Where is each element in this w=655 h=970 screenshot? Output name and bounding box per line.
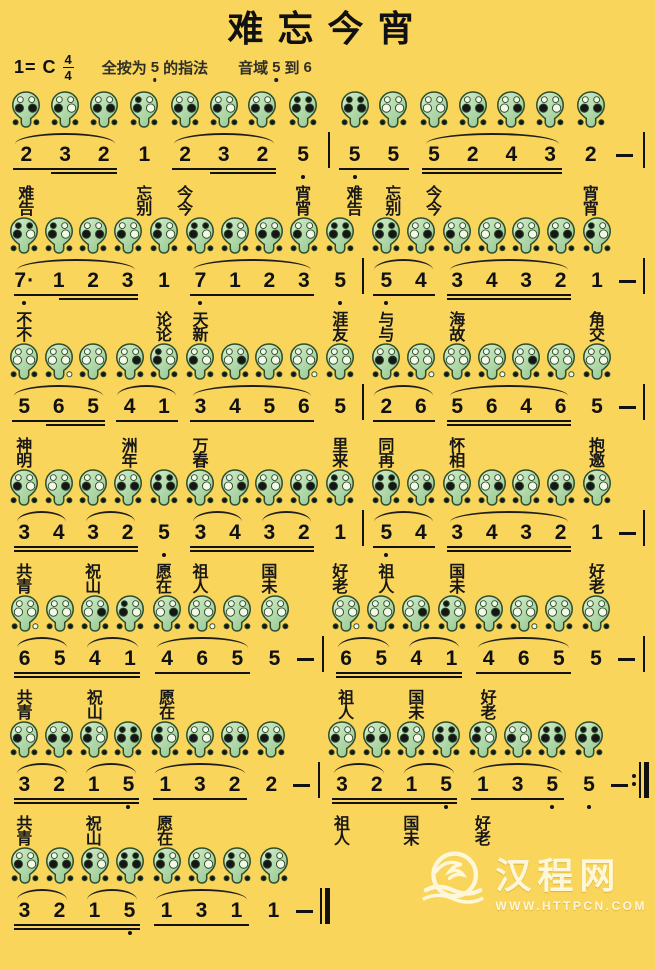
note-number: 1	[161, 899, 173, 923]
ocarina-fingering-icon	[252, 342, 286, 382]
note-number: 5	[591, 395, 603, 419]
lyric-verse1: 祖	[192, 554, 208, 573]
barline-stroke	[643, 258, 645, 294]
beam-line	[447, 294, 571, 296]
dash-rest	[293, 592, 318, 671]
lyric-verse2: 别	[385, 195, 401, 214]
lyric-verse2: 在	[159, 699, 175, 718]
ocarina-fingering-icon	[150, 594, 184, 634]
dash-stroke	[616, 154, 633, 157]
dash-stroke	[293, 784, 310, 787]
dash-rest	[611, 88, 638, 167]
lyric-verse1: 今	[426, 176, 442, 195]
note-group: 1角交	[580, 214, 614, 340]
low-octave-dot	[353, 175, 357, 179]
ocarina-fingering-icon	[7, 720, 41, 760]
ocarina-fingering-icon	[168, 90, 202, 130]
note-cell: 7天新	[183, 214, 217, 340]
beam-line	[14, 924, 140, 926]
lyric-verse2: 人	[334, 825, 350, 844]
score-header: 1= C 4 4 全按为 5 的指法 音域 5 到 6	[14, 52, 655, 82]
low-octave-dot	[22, 301, 26, 305]
ocarina-fingering-icon	[404, 468, 438, 508]
note-number: 1	[89, 899, 101, 923]
note-cell: 3共青	[7, 466, 41, 592]
note-number: 5	[269, 647, 281, 671]
note-cell: 2	[76, 214, 110, 340]
note-number: 3	[544, 143, 556, 167]
ocarina-fingering-icon	[245, 90, 279, 130]
beam-line	[373, 546, 435, 548]
ocarina-fingering-icon	[287, 216, 321, 256]
note-cell: 3	[531, 88, 570, 214]
beam-line	[116, 420, 178, 422]
beam-line	[14, 294, 138, 296]
lyric-verse1: 万	[192, 428, 208, 447]
ocarina-fingering-icon	[218, 720, 252, 760]
note-cell: 5	[112, 844, 147, 970]
note-cell: 5	[578, 592, 613, 718]
barline	[318, 592, 328, 671]
ocarina-fingering-icon	[544, 342, 578, 382]
note-number: 3	[218, 143, 230, 167]
note-number: 2	[229, 773, 241, 797]
range-low-note: 5	[272, 59, 280, 76]
lyric-verse1: 里	[332, 428, 348, 447]
note-cell: 3	[46, 88, 85, 214]
note-cell: 2	[543, 466, 577, 592]
ocarina-fingering-icon	[329, 594, 363, 634]
note-cell: 2	[42, 718, 77, 844]
note-cell: 5抱邀	[580, 340, 614, 466]
note-number: 2	[380, 395, 392, 419]
note-cell: 5怀相	[440, 340, 474, 466]
ocarina-fingering-icon	[475, 468, 509, 508]
note-number: 5	[583, 773, 595, 797]
barline-stroke	[362, 258, 364, 294]
lyric-verse1: 祝	[86, 806, 102, 825]
lyric-verse2: 未	[408, 699, 424, 718]
note-number: 3	[19, 773, 31, 797]
ocarina-fingering-icon	[258, 594, 292, 634]
note-number: 3	[195, 521, 207, 545]
ocarina-fingering-icon	[252, 468, 286, 508]
range-high-note: 6	[304, 59, 312, 76]
note-number: 6	[340, 647, 352, 671]
note-group: 3祖人21国未5	[325, 718, 464, 844]
note-number: 5	[375, 647, 387, 671]
lyric-verse2: 春	[192, 447, 208, 466]
note-number: 1	[231, 899, 243, 923]
lyric-verse2: 人	[192, 573, 208, 592]
note-cell: 1	[219, 844, 254, 970]
note-cell: 2	[252, 214, 286, 340]
ocarina-fingering-icon	[207, 90, 241, 130]
beam-line	[153, 798, 247, 800]
note-cell: 4好老	[471, 592, 506, 718]
lyric-verse2: 年	[122, 447, 138, 466]
ocarina-fingering-icon	[440, 342, 474, 382]
lyric-verse2: 告	[347, 195, 363, 214]
note-cell: 3祖人	[325, 718, 360, 844]
ocarina-fingering-icon	[42, 216, 76, 256]
note-cell: 5涯友	[323, 214, 357, 340]
note-cell: 1国未	[394, 718, 429, 844]
note-cell: 3万春	[183, 340, 217, 466]
barline-stroke	[328, 132, 330, 168]
note-number: 1	[139, 143, 151, 167]
note-number: 4	[53, 521, 65, 545]
note-cell: 7·不不	[7, 214, 41, 340]
note-number: 2	[555, 269, 567, 293]
note-cell: 5忘别	[374, 88, 413, 214]
ocarina-fingering-icon	[376, 90, 410, 130]
note-number: 3	[18, 521, 30, 545]
beam-line	[373, 420, 435, 422]
note-number: 3	[512, 773, 524, 797]
lyric-verse2: 山	[87, 699, 103, 718]
note-cell: 3祝山	[76, 466, 110, 592]
lyric-verse1: 论	[156, 302, 172, 321]
note-number: 4	[415, 269, 427, 293]
note-number: 5	[124, 899, 136, 923]
beam-line	[190, 420, 314, 422]
note-group: 1忘别	[125, 88, 164, 214]
barline	[358, 466, 368, 545]
note-cell: 4	[474, 466, 508, 592]
ocarina-fingering-icon	[76, 342, 110, 382]
ocarina-fingering-icon	[394, 720, 428, 760]
note-number: 2	[298, 521, 310, 545]
ocarina-fingering-icon	[220, 594, 254, 634]
lyric-verse1: 祖	[338, 680, 354, 699]
note-cell: 2	[453, 88, 492, 214]
low-octave-dot	[550, 805, 554, 809]
note-cell: 3祖人	[183, 466, 217, 592]
score-line-3: 5神明654洲年13万春4565里来2同再65怀相6465抱邀	[0, 340, 655, 466]
note-number: 2	[265, 773, 277, 797]
ocarina-fingering-icon	[9, 90, 43, 130]
score-line-1: 2难告321忘别2今今325宵宵5难告5忘别5今今2432宵宵	[0, 88, 655, 214]
note-group: 4好老65	[471, 592, 576, 718]
note-number: 4	[229, 395, 241, 419]
note-group: 5神明65	[7, 340, 110, 466]
note-number: 5	[590, 647, 602, 671]
lyric-verse2: 别	[136, 195, 152, 214]
lyric-verse2: 青	[16, 573, 32, 592]
note-number: 5	[440, 773, 452, 797]
lyric-verse2: 论	[156, 321, 172, 340]
note-number: 5	[334, 395, 346, 419]
ocarina-fingering-icon	[338, 90, 372, 130]
dash-stroke	[619, 532, 636, 535]
lyric-verse1: 好	[589, 554, 605, 573]
ocarina-fingering-icon	[183, 342, 217, 382]
note-group: 7天新123	[183, 214, 321, 340]
note-group: 3215	[7, 844, 147, 970]
beam-line	[12, 420, 105, 422]
ocarina-fingering-icon	[43, 846, 77, 886]
barline-stroke	[362, 384, 364, 420]
note-number: 7·	[14, 269, 34, 293]
note-number: 5	[380, 521, 392, 545]
note-cell: 4	[41, 466, 75, 592]
note-number: 4	[229, 521, 241, 545]
ocarina-fingering-icon	[147, 468, 181, 508]
ocarina-fingering-icon	[7, 342, 41, 382]
note-number: 1	[406, 773, 418, 797]
note-number: 5	[380, 269, 392, 293]
note-group: 1	[256, 844, 291, 970]
lyric-verse2: 在	[156, 573, 172, 592]
ocarina-fingering-icon	[218, 216, 252, 256]
note-number: 4	[486, 269, 498, 293]
note-cell: 5	[429, 718, 464, 844]
lyric-verse2: 山	[86, 825, 102, 844]
ocarina-fingering-icon	[77, 720, 111, 760]
note-number: 5	[451, 395, 463, 419]
note-group: 1好老35	[466, 718, 570, 844]
ocarina-fingering-icon	[43, 594, 77, 634]
barline-stroke	[643, 636, 645, 672]
lyric-verse1: 国	[449, 554, 465, 573]
lyric-verse1: 愿	[159, 680, 175, 699]
ocarina-fingering-icon	[42, 468, 76, 508]
lyric-verse2: 再	[378, 447, 394, 466]
ocarina-fingering-icon	[8, 594, 42, 634]
lyric-verse1: 好	[481, 680, 497, 699]
note-group: 1好老	[323, 466, 357, 592]
note-cell: 5	[572, 718, 607, 844]
time-signature-bottom: 4	[65, 68, 72, 82]
ocarina-fingering-icon	[113, 846, 147, 886]
note-group: 5涯友	[323, 214, 357, 340]
ocarina-fingering-icon	[369, 468, 403, 508]
beam-line-2	[14, 802, 139, 804]
ocarina-fingering-icon	[42, 342, 76, 382]
score-body: 2难告321忘别2今今325宵宵5难告5忘别5今今2432宵宵7·不不1231论…	[0, 88, 655, 970]
final-barline	[317, 844, 335, 923]
ocarina-fingering-icon	[147, 216, 181, 256]
note-cell: 1	[112, 592, 147, 718]
beam-line-2	[447, 424, 571, 426]
lyric-verse1: 好	[475, 806, 491, 825]
lyric-verse2: 今	[426, 195, 442, 214]
ocarina-fingering-icon	[252, 216, 286, 256]
score-line-6: 3共青21祝山51愿在3223祖人21国未51好老355	[0, 718, 655, 844]
note-group: 2难告32	[7, 88, 123, 214]
beam-line	[447, 546, 571, 548]
ocarina-fingering-icon	[544, 216, 578, 256]
lyric-verse1: 忘	[136, 176, 152, 195]
ocarina-fingering-icon	[7, 216, 41, 256]
barline-stroke	[318, 762, 320, 798]
note-cell: 1	[434, 592, 469, 718]
note-number: 1	[159, 773, 171, 797]
beam-line	[172, 168, 276, 170]
note-number: 4	[411, 647, 423, 671]
lyric-verse2: 宵	[295, 195, 311, 214]
note-group: 5	[257, 592, 292, 718]
ocarina-fingering-icon	[509, 468, 543, 508]
repeat-end-barline	[632, 718, 649, 797]
note-cell: 5	[111, 718, 146, 844]
note-number: 5	[297, 143, 309, 167]
note-cell: 1好老	[466, 718, 501, 844]
note-number: 1	[53, 269, 65, 293]
barline	[314, 718, 324, 797]
note-group: 2今今32	[166, 88, 282, 214]
note-cell: 3国未	[252, 466, 286, 592]
final-bars	[320, 888, 330, 924]
beam-line-2	[447, 550, 571, 552]
note-cell: 3	[7, 844, 42, 970]
note-number: 5	[54, 647, 66, 671]
beam-line-2	[14, 928, 140, 930]
note-group: 5与与4	[369, 214, 438, 340]
beam-line-2	[332, 802, 457, 804]
lyric-verse2: 老	[481, 699, 497, 718]
ocarina-fingering-icon	[369, 342, 403, 382]
note-group: 1好老	[580, 466, 614, 592]
note-number: 3	[87, 521, 99, 545]
ocarina-fingering-icon	[111, 216, 145, 256]
note-group: 2同再6	[369, 340, 438, 466]
lyric-verse2: 今	[177, 195, 193, 214]
score-line-4: 3共青43祝山25愿在3祖人43国未21好老5祖人43国未4321好老	[0, 466, 655, 592]
ocarina-fingering-icon	[76, 216, 110, 256]
ocarina-fingering-icon	[185, 594, 219, 634]
ocarina-fingering-icon	[417, 90, 451, 130]
note-number: 2	[264, 269, 276, 293]
barline-stroke	[362, 510, 364, 546]
note-number: 6	[298, 395, 310, 419]
note-number: 6	[486, 395, 498, 419]
note-number: 5	[428, 143, 440, 167]
ocarina-fingering-icon	[111, 468, 145, 508]
ocarina-fingering-icon	[535, 720, 569, 760]
dash-stroke	[619, 406, 636, 409]
ocarina-fingering-icon	[440, 216, 474, 256]
ocarina-fingering-icon	[218, 342, 252, 382]
ocarina-fingering-icon	[147, 342, 181, 382]
lyric-verse2: 新	[192, 321, 208, 340]
ocarina-fingering-icon	[440, 468, 474, 508]
note-cell: 4	[474, 214, 508, 340]
note-group: 4洲年1	[112, 340, 181, 466]
beam-line	[14, 672, 140, 674]
ocarina-fingering-icon	[501, 720, 535, 760]
note-cell: 6	[185, 592, 220, 718]
ocarina-fingering-icon	[111, 720, 145, 760]
beam-line	[476, 672, 571, 674]
note-number: 6	[19, 647, 31, 671]
note-group: 5今今243	[415, 88, 570, 214]
note-number: 3	[520, 521, 532, 545]
note-number: 5	[158, 521, 170, 545]
ocarina-fingering-icon	[399, 594, 433, 634]
note-cell: 6	[506, 592, 541, 718]
thick-bar	[325, 888, 330, 924]
ocarina-fingering-icon	[360, 720, 394, 760]
note-cell: 2	[217, 718, 252, 844]
note-cell: 5	[364, 592, 399, 718]
note-group: 3海故432	[440, 214, 578, 340]
note-number: 4	[89, 647, 101, 671]
note-group: 5愿在	[147, 466, 181, 592]
ocarina-fingering-icon	[325, 720, 359, 760]
note-number: 5	[387, 143, 399, 167]
note-cell: 1角交	[580, 214, 614, 340]
low-octave-dot	[384, 553, 388, 557]
ocarina-fingering-icon	[183, 720, 217, 760]
note-cell: 5	[76, 340, 110, 466]
note-cell: 2	[287, 466, 321, 592]
lyric-verse1: 今	[177, 176, 193, 195]
lyric-verse1: 洲	[122, 428, 138, 447]
note-number: 1	[158, 269, 170, 293]
beam-line-2	[190, 550, 314, 552]
beam-line-2	[422, 172, 561, 174]
note-number: 5	[232, 647, 244, 671]
note-cell: 5愿在	[147, 466, 181, 592]
beam-line	[13, 168, 117, 170]
low-octave-dot	[126, 805, 130, 809]
lyric-verse2: 老	[475, 825, 491, 844]
low-octave-dot	[301, 175, 305, 179]
note-number: 3	[298, 269, 310, 293]
note-number: 5	[553, 647, 565, 671]
low-octave-dot	[128, 931, 132, 935]
note-cell: 4洲年	[112, 340, 146, 466]
lyric-verse2: 人	[378, 573, 394, 592]
dash-rest	[615, 466, 639, 545]
ocarina-fingering-icon	[364, 594, 398, 634]
lyric-verse1: 抱	[589, 428, 605, 447]
lyric-verse1: 好	[332, 554, 348, 573]
note-cell: 2	[359, 718, 394, 844]
note-cell: 1忘别	[125, 88, 164, 214]
barline-stroke	[643, 510, 645, 546]
barline-stroke	[643, 132, 645, 168]
note-number: 3	[451, 521, 463, 545]
ocarina-fingering-icon	[148, 720, 182, 760]
note-group: 6祖人54国未1	[329, 592, 470, 718]
ocarina-fingering-icon	[150, 846, 184, 886]
note-group: 2	[254, 718, 289, 844]
note-group: 1论论	[147, 214, 181, 340]
low-octave-dot	[198, 301, 202, 305]
note-cell: 3	[509, 214, 543, 340]
ocarina-fingering-icon	[580, 342, 614, 382]
dash-stroke	[296, 910, 313, 913]
note-number: 2	[555, 521, 567, 545]
barline-stroke	[322, 636, 324, 672]
note-cell: 5与与	[369, 214, 403, 340]
note-cell: 1	[149, 844, 184, 970]
fingering-base-note: 5	[151, 59, 159, 76]
ocarina-fingering-icon	[323, 216, 357, 256]
note-group: 5宵宵	[284, 88, 323, 214]
note-cell: 2同再	[369, 340, 403, 466]
ocarina-fingering-icon	[507, 594, 541, 634]
ocarina-fingering-icon	[509, 342, 543, 382]
beam-line-2	[59, 298, 138, 300]
note-number: 2	[122, 521, 134, 545]
low-octave-dot	[338, 301, 342, 305]
ocarina-fingering-icon	[574, 90, 608, 130]
lyric-verse1: 共	[16, 554, 32, 573]
